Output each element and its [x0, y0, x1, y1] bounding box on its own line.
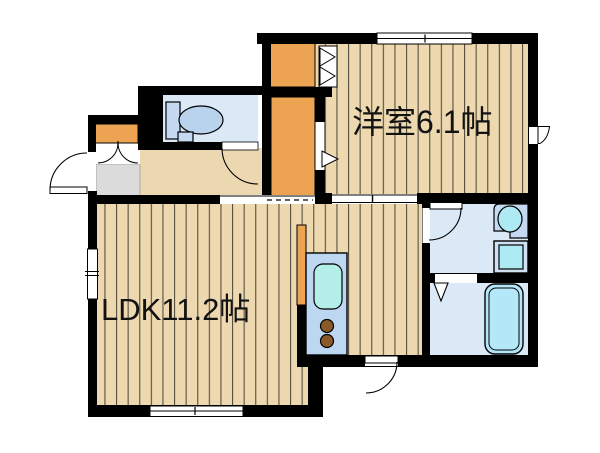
- wall-left-ldk: [88, 191, 97, 417]
- back-door: [365, 356, 398, 393]
- shoe-cabinet: [93, 124, 138, 143]
- stove-burner-2: [321, 335, 334, 348]
- window-right-vent: [529, 127, 550, 145]
- entrance-door: [50, 152, 96, 194]
- wall-left-upper: [88, 115, 96, 152]
- hallway-floor: [138, 148, 262, 196]
- wall-ldk-top: [88, 195, 220, 204]
- window-west: [85, 249, 99, 299]
- wall-genkan-top: [88, 115, 143, 124]
- stove-burner-1: [321, 320, 334, 333]
- washing-machine-icon: [494, 241, 528, 273]
- genkan-floor: [96, 164, 140, 196]
- window-south: [150, 406, 243, 417]
- wall-south-right-section: [297, 355, 538, 367]
- floor-plan: 洋室6.1帖 LDK11.2帖: [0, 0, 600, 453]
- kitchen-side-panel: [297, 225, 306, 305]
- wall-yoshitsu-south-left: [315, 193, 332, 204]
- ldk-label: LDK11.2帖: [101, 292, 250, 327]
- wall-mid-vertical: [262, 38, 271, 196]
- window-north: [377, 33, 472, 44]
- western-room-label: 洋室6.1帖: [352, 104, 493, 140]
- kitchen-sink: [314, 264, 342, 309]
- bathtub-icon: [485, 284, 523, 354]
- closet-lower: [271, 97, 315, 196]
- opening-hall-to-ldk: [220, 195, 315, 204]
- floor-plan-canvas: 洋室6.1帖 LDK11.2帖: [0, 0, 600, 453]
- sliding-door-yoshitsu: [332, 194, 417, 204]
- closet-upper: [264, 42, 315, 87]
- wall-closet-divider: [262, 87, 332, 97]
- wall-toilet-bottom: [140, 142, 222, 150]
- kitchen-counter: [306, 253, 347, 355]
- closet-upper-doors: [319, 46, 337, 87]
